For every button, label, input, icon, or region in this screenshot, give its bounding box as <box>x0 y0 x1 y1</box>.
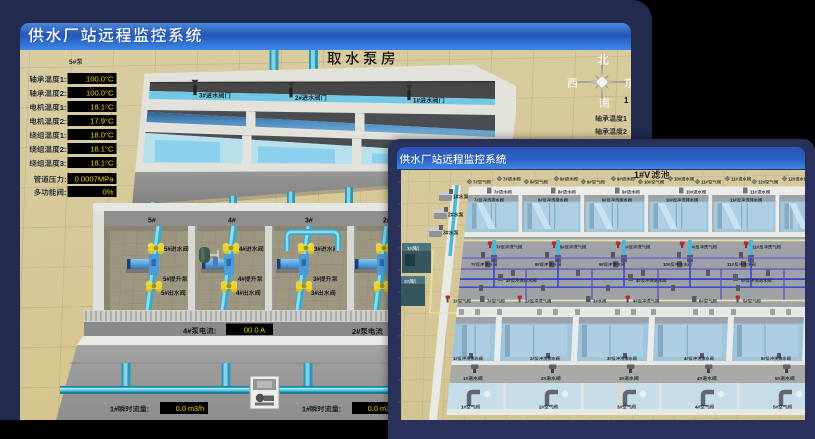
svg-text:4#: 4# <box>633 299 638 304</box>
svg-text:1#: 1# <box>413 98 420 105</box>
svg-text:2:: 2: <box>60 145 67 154</box>
svg-text:11#: 11# <box>750 190 758 195</box>
svg-text:8#: 8# <box>538 198 543 203</box>
svg-text:7#: 7# <box>487 299 492 304</box>
svg-text:2#: 2# <box>530 356 535 361</box>
svg-text:1#: 1# <box>453 195 459 201</box>
svg-text:0%: 0% <box>103 188 114 197</box>
svg-text:3#: 3# <box>199 93 206 100</box>
svg-text:9#: 9# <box>587 180 592 185</box>
svg-text:1#: 1# <box>110 405 118 414</box>
svg-text:4#: 4# <box>236 291 243 297</box>
svg-text:1#风: 1#风 <box>407 245 417 252</box>
svg-text:9#: 9# <box>599 262 604 267</box>
svg-text:12#: 12# <box>788 177 796 182</box>
svg-text::: : <box>339 405 341 414</box>
svg-text:9#: 9# <box>617 177 622 182</box>
svg-text:5#: 5# <box>773 405 779 410</box>
svg-text:6#: 6# <box>699 299 704 304</box>
svg-text:8#: 8# <box>558 190 563 195</box>
svg-text:100.0°C: 100.0°C <box>86 89 114 98</box>
svg-text:3#: 3# <box>314 247 321 253</box>
svg-text:10#: 10# <box>674 177 682 182</box>
svg-text:11#: 11# <box>752 245 760 250</box>
svg-text:2:: 2: <box>60 89 67 98</box>
svg-text:4#: 4# <box>238 277 245 283</box>
svg-text:11#: 11# <box>727 262 735 267</box>
svg-text:18.1°C: 18.1°C <box>90 159 114 168</box>
svg-text:4#: 4# <box>239 247 246 253</box>
svg-text:8#: 8# <box>530 180 535 185</box>
svg-text::: : <box>214 327 217 336</box>
svg-text:5#: 5# <box>163 277 170 283</box>
svg-text:8#: 8# <box>535 262 540 267</box>
svg-text:3#: 3# <box>619 376 625 382</box>
svg-text:3#: 3# <box>617 405 623 410</box>
svg-text:3#: 3# <box>443 231 449 237</box>
svg-text:10#: 10# <box>686 190 694 195</box>
svg-text:4#: 4# <box>695 405 701 410</box>
svg-text:4#: 4# <box>228 218 236 225</box>
svg-text:18.0°C: 18.0°C <box>90 131 114 140</box>
svg-text:10#: 10# <box>663 262 671 267</box>
svg-text:1#: 1# <box>461 405 467 410</box>
svg-text:5#: 5# <box>741 278 746 283</box>
svg-text:4#: 4# <box>684 356 689 361</box>
svg-text:2:: 2: <box>60 117 67 126</box>
svg-text:0.0007MPa: 0.0007MPa <box>75 175 115 184</box>
svg-text:2#风: 2#风 <box>404 278 414 285</box>
svg-text:5#: 5# <box>69 59 77 66</box>
svg-text:3#: 3# <box>313 277 320 283</box>
svg-text:0.0 m3/h: 0.0 m3/h <box>176 404 204 413</box>
svg-text:5#: 5# <box>775 376 781 382</box>
svg-text:2#: 2# <box>539 405 545 410</box>
svg-text:1#: 1# <box>453 356 458 361</box>
svg-text:3:: 3: <box>60 159 67 168</box>
svg-text:5#: 5# <box>161 291 168 297</box>
svg-text:3#: 3# <box>607 356 612 361</box>
svg-text:2#: 2# <box>448 213 454 219</box>
svg-text:4#: 4# <box>636 278 641 283</box>
svg-text:17.9°C: 17.9°C <box>90 117 114 126</box>
svg-text:7#: 7# <box>471 262 476 267</box>
svg-text:2#: 2# <box>541 376 547 382</box>
svg-text:10#: 10# <box>666 198 674 203</box>
svg-text:18.1°C: 18.1°C <box>90 103 114 112</box>
svg-text:2#: 2# <box>352 327 361 336</box>
svg-text:00.0 A: 00.0 A <box>244 326 265 335</box>
svg-text:1:: 1: <box>60 131 67 140</box>
svg-text::: : <box>64 175 67 184</box>
svg-text:1#V: 1#V <box>634 170 651 180</box>
svg-text:10#: 10# <box>644 180 652 185</box>
svg-text:2#: 2# <box>506 278 511 283</box>
svg-text:7#: 7# <box>473 180 478 185</box>
svg-text:3#: 3# <box>311 291 318 297</box>
svg-text:4#: 4# <box>183 327 192 336</box>
svg-text:5#: 5# <box>761 356 766 361</box>
svg-text:1:: 1: <box>60 103 67 112</box>
svg-text:11#: 11# <box>730 198 737 203</box>
svg-text:9#: 9# <box>602 198 607 203</box>
svg-text::: : <box>147 405 149 414</box>
svg-text:1:: 1: <box>60 75 67 84</box>
svg-text:2#: 2# <box>295 95 302 102</box>
svg-text:2: 2 <box>623 129 627 136</box>
svg-text:5#: 5# <box>148 218 156 225</box>
svg-text:1: 1 <box>623 116 627 123</box>
svg-text:100.0°C: 100.0°C <box>86 75 114 84</box>
svg-text:12#: 12# <box>758 180 766 185</box>
svg-text:11#: 11# <box>701 180 709 185</box>
svg-text:7#: 7# <box>496 245 501 250</box>
svg-text:8#: 8# <box>560 177 565 182</box>
svg-text:7#: 7# <box>474 198 479 203</box>
svg-text:7#: 7# <box>503 177 508 182</box>
svg-text::: : <box>64 188 67 197</box>
svg-text:3#: 3# <box>593 299 598 304</box>
svg-text:18.1°C: 18.1°C <box>90 145 114 154</box>
svg-text:7#: 7# <box>494 190 499 195</box>
svg-text:1#: 1# <box>302 405 310 414</box>
svg-text:2#: 2# <box>525 299 530 304</box>
svg-text:5#: 5# <box>743 299 748 304</box>
svg-text:1: 1 <box>624 96 629 105</box>
svg-text:9#: 9# <box>622 190 627 195</box>
svg-text:4#: 4# <box>697 376 703 382</box>
svg-text:5#: 5# <box>164 247 171 253</box>
svg-text:8#: 8# <box>560 245 565 250</box>
svg-text:1#: 1# <box>453 299 458 304</box>
svg-text:11#: 11# <box>731 177 739 182</box>
svg-text:3#: 3# <box>305 218 313 225</box>
svg-text:1#: 1# <box>463 376 469 382</box>
